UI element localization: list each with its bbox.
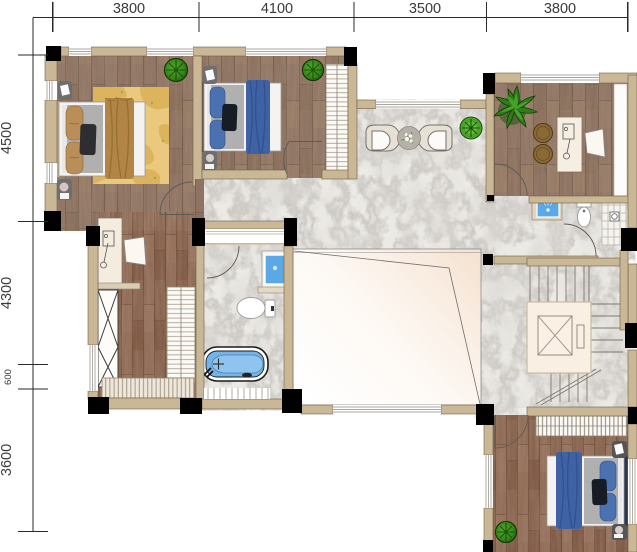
svg-text:3600: 3600 <box>0 444 15 476</box>
svg-text:600: 600 <box>3 369 14 385</box>
svg-text:3800: 3800 <box>544 1 576 17</box>
svg-text:4500: 4500 <box>0 122 15 154</box>
svg-text:4300: 4300 <box>0 277 15 309</box>
svg-text:4100: 4100 <box>261 1 293 17</box>
svg-text:3800: 3800 <box>113 1 145 17</box>
svg-text:3500: 3500 <box>409 1 441 17</box>
